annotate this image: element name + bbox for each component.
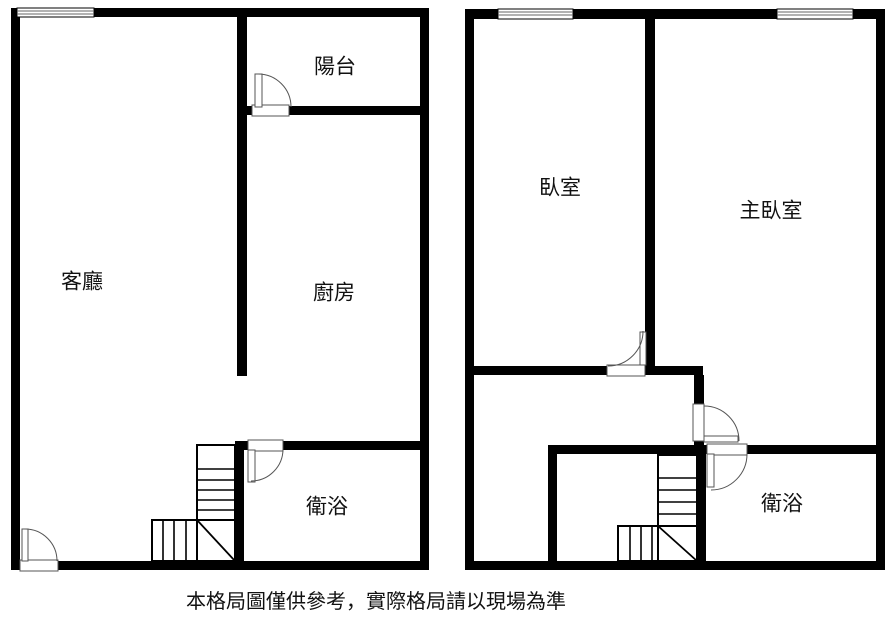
wall-bedroom-bottom (474, 366, 703, 375)
wall (420, 8, 429, 570)
door-leaf (707, 454, 714, 487)
window-icon (777, 9, 853, 19)
door-leaf (22, 529, 28, 561)
stairs-icon (152, 445, 235, 561)
room-label-master-bedroom: 主臥室 (740, 200, 803, 223)
wall (876, 9, 885, 570)
right-floor-plan: 臥室 主臥室 衛浴 (465, 9, 885, 570)
room-label-kitchen: 廚房 (313, 282, 355, 305)
left-floor-plan: 陽台 客廳 廚房 衛浴 (11, 8, 429, 571)
wall (465, 9, 474, 570)
door-icon-entry (20, 529, 58, 571)
wall-stair (235, 441, 244, 570)
floor-plan-svg: 陽台 客廳 廚房 衛浴 (0, 0, 889, 622)
door-swing-arc (251, 449, 283, 481)
door-leaf (248, 450, 255, 482)
door-swing-arc (711, 454, 747, 490)
wall (465, 561, 885, 570)
room-label-balcony: 陽台 (314, 56, 356, 79)
floor-plan-image: 陽台 客廳 廚房 衛浴 (0, 0, 889, 622)
wall-bedroom-divider (645, 19, 655, 367)
stairs-icon (618, 455, 697, 561)
window-frame (777, 9, 853, 19)
door-swing-arc (25, 529, 57, 561)
stair-run-vertical (197, 445, 235, 520)
door-threshold (707, 444, 747, 455)
stair-run-vertical (658, 455, 697, 527)
door-swing-arc (608, 331, 643, 366)
door-icon-master-bedroom (693, 404, 739, 442)
room-label-bathroom-2: 衛浴 (761, 493, 803, 516)
wall-stair-bathroom (697, 453, 706, 570)
wall-kitchen-divider (237, 17, 247, 376)
door-threshold (20, 560, 58, 571)
room-label-bedroom: 臥室 (539, 177, 581, 200)
door-icon-bedroom (607, 331, 646, 376)
room-label-bathroom-1: 衛浴 (306, 496, 348, 519)
door-threshold (693, 404, 704, 441)
window-icon (498, 9, 573, 19)
door-threshold (607, 365, 645, 376)
door-leaf (704, 436, 738, 442)
door-swing-arc (258, 74, 291, 107)
wall-stair-room (548, 445, 557, 570)
window-frame (498, 9, 573, 19)
wall (11, 8, 20, 570)
window-frame (17, 8, 94, 17)
room-label-living-room: 客廳 (61, 271, 103, 294)
door-icon-bathroom-2 (707, 444, 747, 490)
wall (11, 561, 429, 570)
disclaimer-caption: 本格局圖僅供參考，實際格局請以現場為準 (186, 590, 566, 613)
window-icon (17, 8, 94, 17)
door-leaf (255, 74, 262, 107)
door-icon-bathroom (248, 440, 283, 482)
door-icon-balcony (252, 74, 291, 116)
door-threshold (248, 440, 283, 451)
